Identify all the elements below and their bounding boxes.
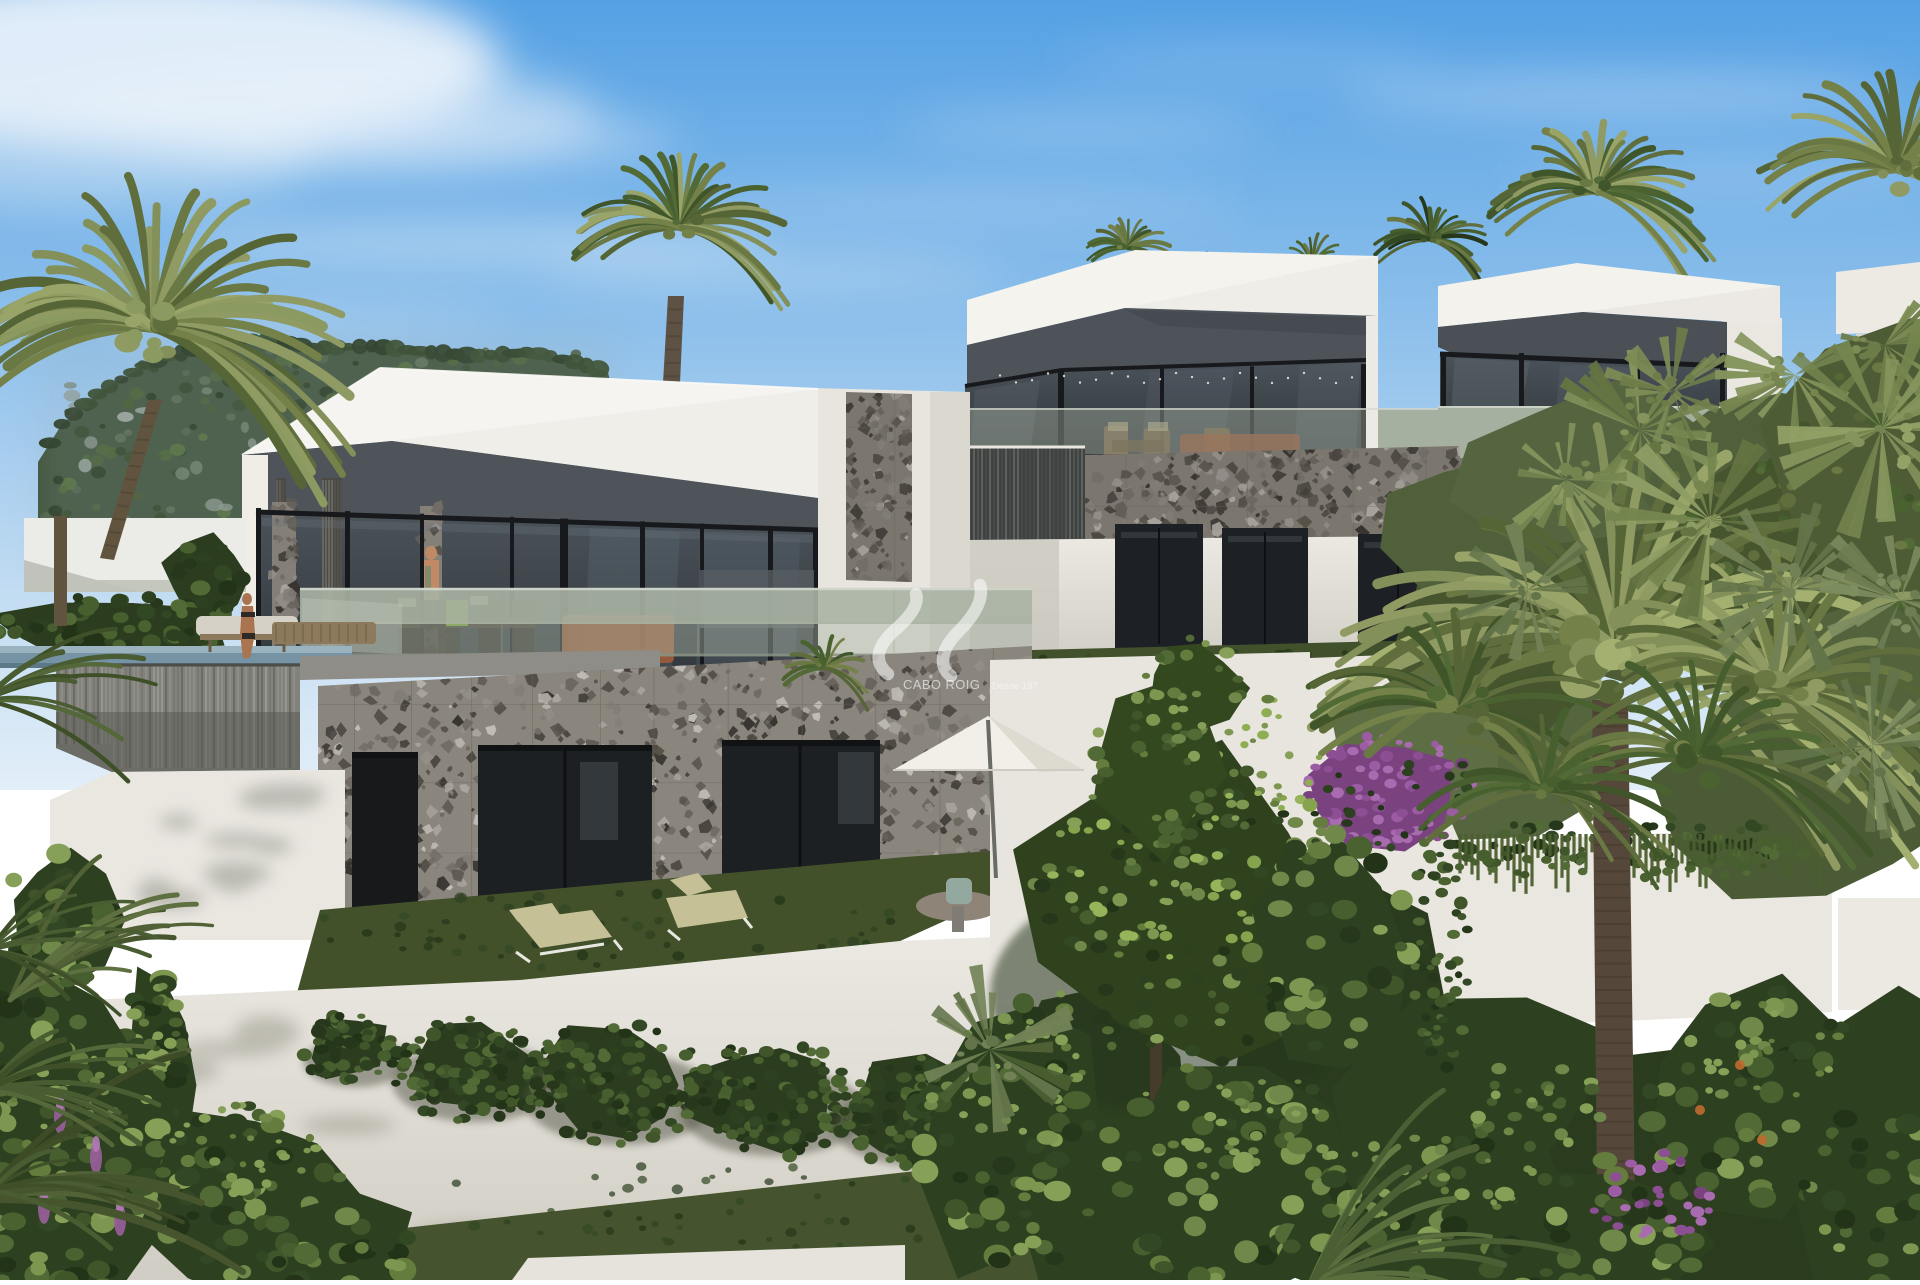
svg-text:Desde 197: Desde 197 — [992, 681, 1038, 692]
svg-text:CABO ROIG: CABO ROIG — [903, 677, 980, 692]
